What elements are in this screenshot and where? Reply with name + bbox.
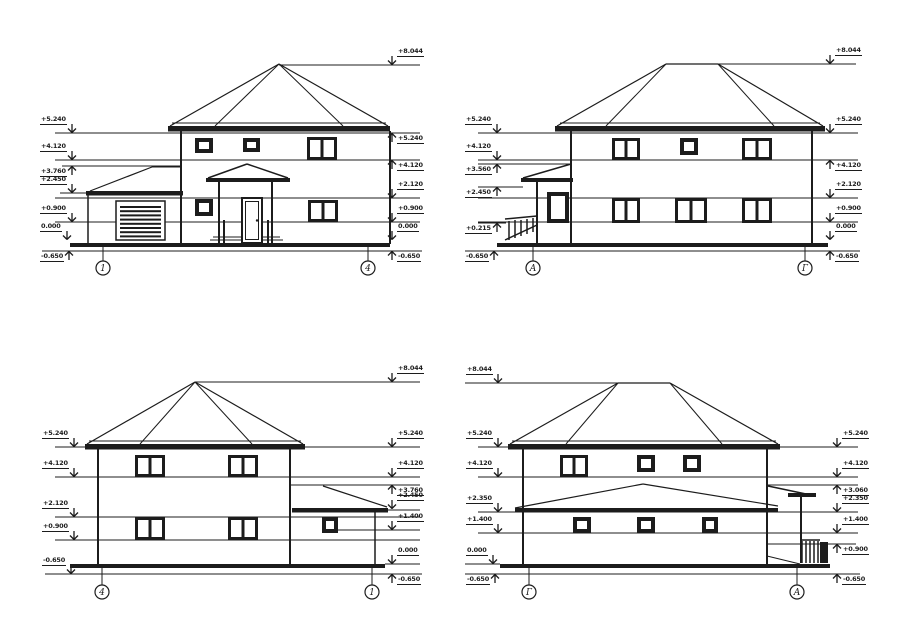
window xyxy=(680,138,698,155)
grid-axis-А: А xyxy=(526,245,540,275)
window xyxy=(228,455,258,477)
entrance-door xyxy=(242,198,262,243)
window xyxy=(195,138,213,153)
axis-label: 4 xyxy=(364,264,371,274)
axis-label: А xyxy=(793,588,801,598)
entrance-door xyxy=(547,192,569,223)
grid-axis-Г: Г xyxy=(522,568,536,599)
grid-axis-1: 1 xyxy=(96,245,110,275)
window xyxy=(243,138,260,152)
grid-axis-4: 4 xyxy=(361,245,375,275)
window xyxy=(560,455,588,477)
axis-label: Г xyxy=(525,588,533,598)
axis-label: Г xyxy=(801,264,809,274)
axis-label: А xyxy=(529,264,537,274)
facade-4-1: 41 xyxy=(45,382,422,599)
window xyxy=(228,517,258,540)
grid-axis-4: 4 xyxy=(95,568,109,599)
window xyxy=(135,455,165,477)
elevations-drawing-sheet: 14АГ41ГА +5.240+4.120+3.760+2.450+0.9000… xyxy=(0,0,918,642)
window xyxy=(322,517,338,533)
window xyxy=(573,517,591,533)
window xyxy=(612,138,640,160)
axis-label: 1 xyxy=(100,264,106,274)
window xyxy=(742,138,772,160)
window xyxy=(742,198,772,223)
window xyxy=(637,455,655,472)
axis-label: 1 xyxy=(369,588,375,598)
facade-a-g: АГ xyxy=(465,64,860,275)
window xyxy=(308,200,338,222)
grid-axis-А: А xyxy=(790,568,804,599)
elevations-linework: 14АГ41ГА xyxy=(0,0,918,642)
window xyxy=(702,517,718,533)
axis-label: 4 xyxy=(98,588,105,598)
window xyxy=(612,198,640,223)
window xyxy=(675,198,707,223)
grid-axis-1: 1 xyxy=(365,568,379,599)
window xyxy=(135,517,165,540)
grid-axis-Г: Г xyxy=(798,245,812,275)
window xyxy=(195,199,213,216)
facade-g-a: ГА xyxy=(465,383,860,599)
facade-1-4: 14 xyxy=(42,64,422,275)
window xyxy=(637,517,655,533)
garage-door xyxy=(116,201,165,240)
window xyxy=(307,137,337,160)
window xyxy=(683,455,701,472)
